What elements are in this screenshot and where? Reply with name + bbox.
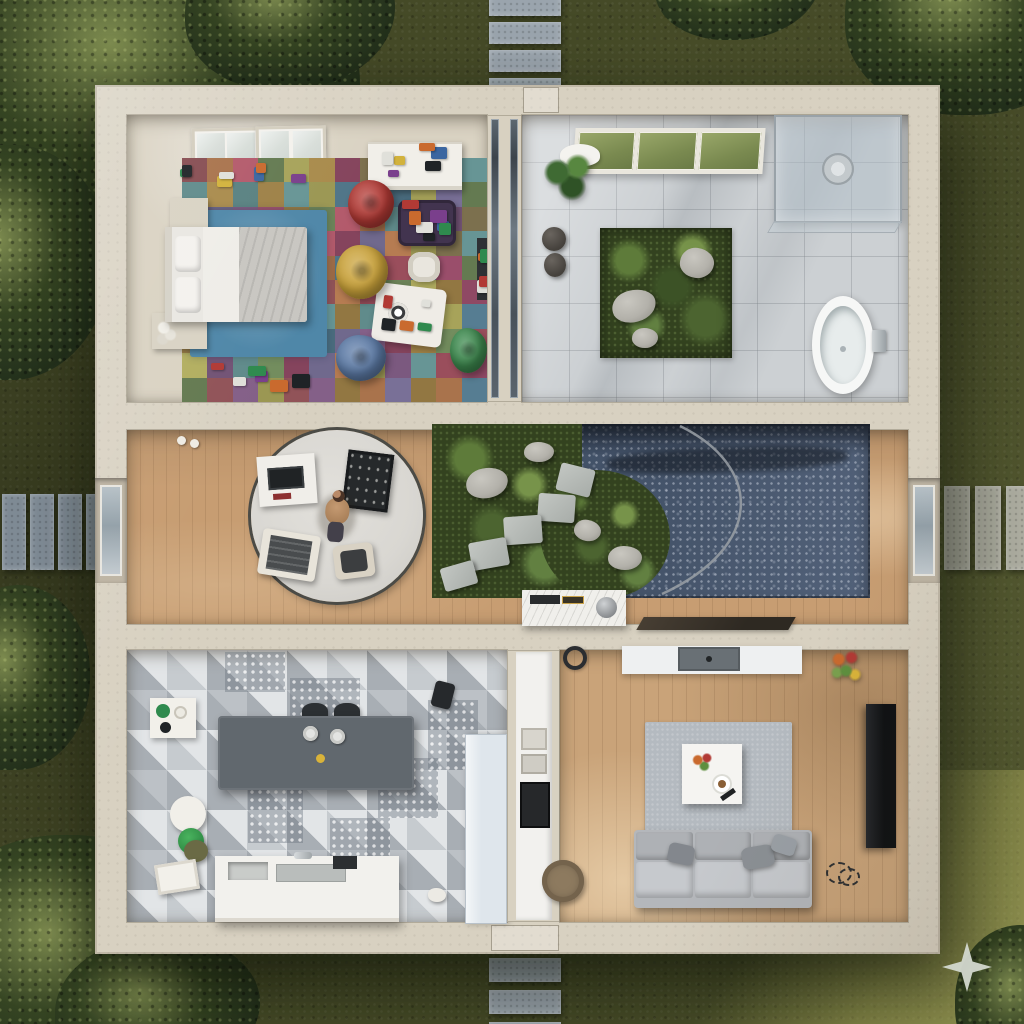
double-bed xyxy=(165,227,307,322)
wall-speaker xyxy=(177,436,186,445)
toy xyxy=(233,377,246,386)
coffee-table xyxy=(682,744,742,804)
cable-tangle xyxy=(824,858,862,890)
carpet-tile xyxy=(335,158,361,183)
kitchen-island xyxy=(215,856,399,922)
toy xyxy=(381,318,396,332)
glass-partition-wall xyxy=(487,115,522,402)
toy xyxy=(291,174,306,183)
wall-tv xyxy=(866,704,896,848)
stool xyxy=(332,542,376,581)
lemon xyxy=(316,754,325,763)
island-faucet xyxy=(294,852,312,859)
activity-table xyxy=(371,282,448,348)
toy xyxy=(419,143,435,151)
toy xyxy=(430,210,447,223)
toy xyxy=(399,320,414,332)
stepping-stone xyxy=(2,494,26,570)
tub-faucet xyxy=(872,330,886,352)
carpet-tile xyxy=(462,158,488,183)
olive-stool xyxy=(184,840,208,862)
courtyard-pond xyxy=(432,424,870,598)
three-seat-sofa xyxy=(634,830,812,908)
rock xyxy=(632,328,658,348)
dark-pad xyxy=(333,856,357,869)
toy xyxy=(211,363,224,370)
toy-box xyxy=(398,200,456,246)
carpet-tile xyxy=(411,353,437,378)
framed-photo xyxy=(521,728,547,750)
toy xyxy=(382,152,393,165)
built-in-oven xyxy=(520,782,550,828)
toy-side-shelf xyxy=(477,238,487,300)
carpet-tile xyxy=(385,378,411,403)
stepping-stone xyxy=(944,486,970,570)
toy xyxy=(425,161,441,171)
toy xyxy=(402,200,419,209)
stepping-stone xyxy=(975,486,1001,570)
lounge-chair xyxy=(257,528,321,583)
dining-table xyxy=(218,716,414,790)
framed-photo xyxy=(521,754,547,774)
toy xyxy=(256,163,266,173)
toy xyxy=(409,211,421,225)
kid-chair xyxy=(408,252,440,282)
carpet-tile xyxy=(436,256,462,281)
plate xyxy=(303,726,318,741)
carpet-tile xyxy=(462,378,488,403)
carpet-tile xyxy=(335,378,361,403)
stepping-stone xyxy=(1006,486,1024,570)
stepping-stone xyxy=(503,515,543,546)
toy xyxy=(417,322,432,332)
freestanding-bathtub xyxy=(812,296,874,394)
top-entry-seam xyxy=(524,88,558,112)
potted-plant xyxy=(540,150,598,206)
toy xyxy=(421,299,431,307)
toy xyxy=(423,233,435,241)
rock xyxy=(524,442,554,462)
flower-deco xyxy=(155,318,177,346)
stepping-stone xyxy=(489,958,561,982)
stepping-stone xyxy=(489,50,561,72)
standing-person xyxy=(320,485,355,545)
right-entry-door xyxy=(908,478,940,583)
headphones xyxy=(563,646,587,670)
hose-arc xyxy=(432,424,870,598)
carpet-tile xyxy=(462,304,488,329)
carpet-tile xyxy=(385,353,411,378)
kitchen-wall-shelf xyxy=(150,698,196,738)
carpet-tile xyxy=(436,378,462,403)
wall-speaker xyxy=(190,439,199,448)
carpet-tile xyxy=(335,304,361,329)
scene-aerial-house-render xyxy=(0,0,1024,1024)
marble-console xyxy=(522,590,626,626)
left-entry-door xyxy=(95,478,127,583)
carpet-tile xyxy=(462,207,488,232)
crumpled-paper xyxy=(428,888,446,902)
stepping-stone xyxy=(489,22,561,44)
stacked-zen-stones xyxy=(540,225,568,281)
toy xyxy=(248,366,266,376)
side-table xyxy=(170,796,206,832)
stepping-stone xyxy=(537,493,576,524)
toy xyxy=(394,156,405,165)
toy xyxy=(219,172,234,179)
flower-bouquet xyxy=(828,648,864,686)
nightstand xyxy=(170,198,208,228)
toys-row-top xyxy=(167,162,327,190)
patterned-tile xyxy=(248,788,303,843)
sink xyxy=(228,862,268,880)
toy xyxy=(182,165,192,177)
carpet-tile xyxy=(411,378,437,403)
clerestory-window xyxy=(572,128,765,174)
toy xyxy=(292,374,310,388)
media-console xyxy=(622,646,802,674)
plate xyxy=(330,729,345,744)
bottom-entry-seam xyxy=(492,926,558,950)
stepping-stone xyxy=(489,0,561,16)
rock xyxy=(608,546,642,570)
laptop xyxy=(267,466,304,490)
toys-row-bottom xyxy=(203,363,313,395)
stepping-stone xyxy=(58,494,82,570)
toy xyxy=(439,223,451,235)
carpet-tile xyxy=(360,378,386,403)
white-desk xyxy=(256,453,317,507)
toy xyxy=(270,380,288,392)
toy xyxy=(383,295,394,309)
fridge xyxy=(465,734,507,924)
indoor-moss-garden xyxy=(600,228,732,358)
patterned-tile xyxy=(225,652,285,692)
carpet-tile xyxy=(462,182,488,207)
basket xyxy=(542,860,584,902)
rain-shower-head xyxy=(822,153,854,185)
table-flowers xyxy=(690,752,716,772)
walk-in-shower xyxy=(774,115,902,223)
stepping-stone xyxy=(30,494,54,570)
dark-runner xyxy=(636,617,796,630)
toy xyxy=(388,170,399,177)
stepping-stone xyxy=(489,990,561,1014)
